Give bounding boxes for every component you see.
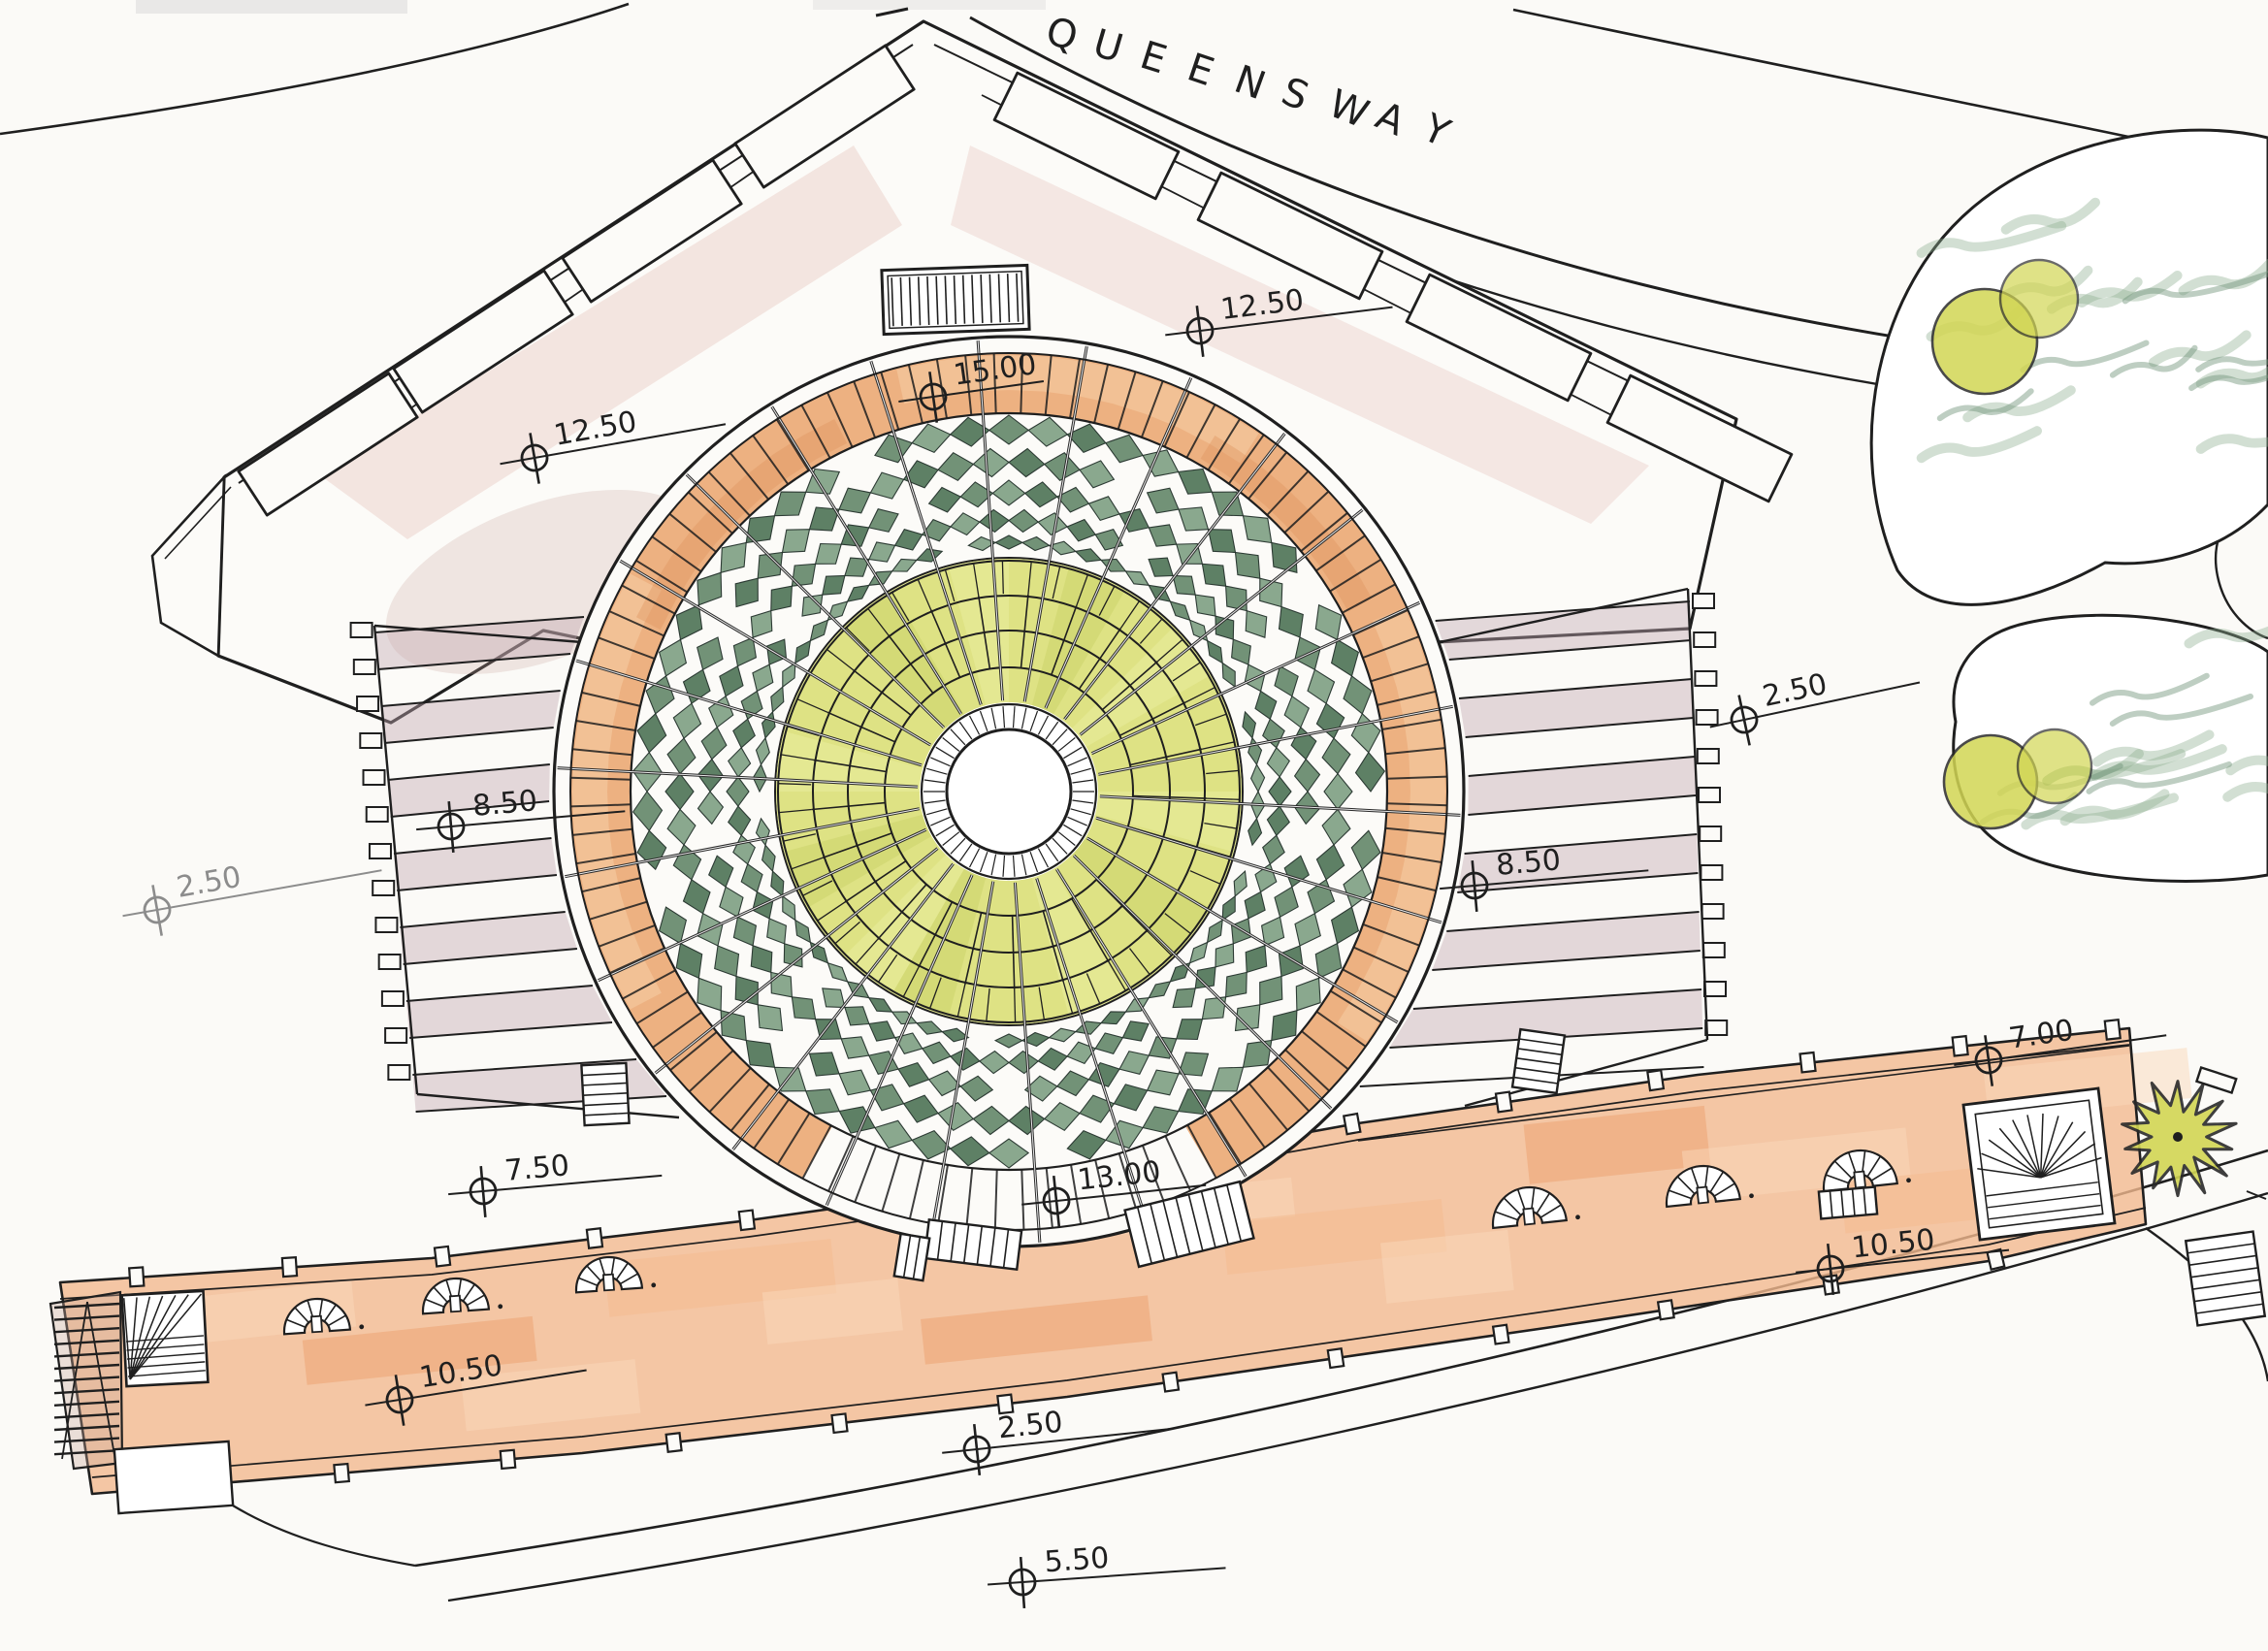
terrace-stair bbox=[1819, 1187, 1877, 1219]
wing-stair bbox=[581, 1063, 629, 1125]
railing-post bbox=[1496, 1092, 1512, 1113]
railing-post bbox=[435, 1246, 450, 1267]
wing-edge-tab bbox=[382, 991, 404, 1006]
glazing-fine-radial bbox=[1002, 561, 1003, 594]
railing-post bbox=[1800, 1052, 1816, 1072]
stair-ramp bbox=[50, 1292, 122, 1469]
wing-edge-tab bbox=[1701, 865, 1722, 880]
railing-post bbox=[1344, 1114, 1360, 1134]
elevation-value: 8.50 bbox=[1495, 843, 1563, 883]
elevation-value: 8.50 bbox=[471, 784, 539, 824]
wing-edge-tab bbox=[364, 770, 385, 785]
wing-edge-tab bbox=[388, 1065, 409, 1080]
glazing-fine-radial bbox=[1015, 989, 1016, 1022]
site-plan-svg: QUEENSWAY 12.5015.0012.502.508.502.508.5… bbox=[0, 0, 2268, 1651]
wing-edge-tab bbox=[375, 918, 397, 932]
railing-post bbox=[334, 1464, 348, 1482]
shrub-center-dot bbox=[2173, 1132, 2183, 1142]
wing-edge-tab bbox=[367, 807, 388, 822]
wing-edge-tab bbox=[357, 696, 378, 711]
shingle-tile bbox=[783, 530, 810, 553]
wing-edge-tab bbox=[1693, 594, 1714, 608]
wing-edge-tab bbox=[351, 623, 373, 637]
oculus-center bbox=[947, 729, 1071, 854]
spiral-stair bbox=[1963, 1088, 2115, 1240]
shingle-tile bbox=[1202, 564, 1225, 586]
shingle-tile bbox=[771, 972, 793, 996]
railing-post bbox=[1953, 1036, 1968, 1055]
shingle-tile bbox=[1226, 586, 1247, 610]
shingle-tile bbox=[1173, 576, 1195, 596]
railing-post bbox=[501, 1450, 515, 1469]
railing-post bbox=[282, 1257, 297, 1277]
tree-canopy bbox=[2000, 260, 2078, 338]
elevation-value: 7.50 bbox=[503, 1149, 571, 1188]
roof-vent-box bbox=[882, 265, 1029, 334]
wing-edge-tab bbox=[1694, 632, 1715, 647]
railing-post bbox=[129, 1267, 144, 1286]
shingle-tile bbox=[792, 997, 815, 1020]
roof-vent bbox=[882, 265, 1029, 334]
wing-edge-tab bbox=[370, 844, 391, 858]
elevation-value: 2.50 bbox=[996, 1406, 1064, 1446]
wing-edge-tab bbox=[1705, 1020, 1727, 1035]
railing-post bbox=[1493, 1325, 1508, 1344]
wing-edge-tab bbox=[360, 733, 381, 748]
wing-edge-tab bbox=[1704, 982, 1726, 996]
railing-post bbox=[587, 1228, 602, 1248]
wing-edge-tab bbox=[354, 660, 375, 674]
spiral-stair bbox=[122, 1291, 209, 1386]
wing-edge-tab bbox=[373, 881, 394, 895]
terrace-edge-stair bbox=[2186, 1232, 2265, 1326]
site-plan-drawing: QUEENSWAY 12.5015.0012.502.508.502.508.5… bbox=[0, 0, 2268, 1651]
railing-post bbox=[1328, 1348, 1344, 1368]
stair-outline bbox=[2186, 1232, 2265, 1326]
wing-edge-tab bbox=[1703, 943, 1725, 957]
wing-edge-tab bbox=[1702, 904, 1724, 919]
shingle-tile bbox=[746, 1041, 774, 1068]
fan-door bbox=[311, 1316, 322, 1333]
wing-edge-tab bbox=[1695, 671, 1716, 686]
railing-post bbox=[2105, 1020, 2121, 1039]
shingle-tile bbox=[1195, 595, 1215, 616]
wing-edge-tab bbox=[1699, 788, 1720, 802]
railing-post bbox=[1647, 1070, 1664, 1090]
shingle-tile bbox=[1209, 530, 1236, 553]
shingle-tile bbox=[823, 576, 845, 596]
railing-post bbox=[666, 1433, 682, 1451]
terrace-base-block bbox=[114, 1441, 233, 1513]
scan-smudge bbox=[813, 0, 1046, 10]
tree-canopy bbox=[2018, 729, 2091, 803]
fan-door bbox=[1854, 1172, 1865, 1188]
fan-door bbox=[450, 1296, 461, 1312]
shingle-tile bbox=[1244, 516, 1272, 543]
shingle-tile bbox=[758, 1005, 782, 1031]
stair-outline bbox=[1819, 1187, 1877, 1219]
railing-post bbox=[1163, 1373, 1179, 1392]
shingle-tile bbox=[1226, 972, 1247, 996]
fan-door bbox=[1523, 1209, 1535, 1225]
elevation-value: 5.50 bbox=[1043, 1541, 1110, 1580]
shingle-tile bbox=[771, 586, 793, 610]
wing-edge-tab bbox=[1698, 749, 1719, 763]
fan-door bbox=[1697, 1187, 1708, 1204]
railing-post bbox=[739, 1211, 755, 1231]
railing-post bbox=[832, 1413, 848, 1432]
railing-post bbox=[1658, 1300, 1674, 1319]
wing-edge-tab bbox=[385, 1028, 406, 1043]
scan-smudge bbox=[136, 0, 407, 14]
stair-outline bbox=[894, 1234, 930, 1280]
shingle-tile bbox=[1173, 988, 1195, 1008]
shingle-tile bbox=[823, 988, 845, 1008]
spiral-outline bbox=[1963, 1088, 2115, 1240]
shingle-tile bbox=[1236, 553, 1260, 579]
wing-edge-tab bbox=[379, 955, 401, 969]
wing-stair bbox=[1512, 1029, 1565, 1093]
dome-roof bbox=[553, 336, 1465, 1247]
dome-stair bbox=[894, 1234, 930, 1280]
fan-door bbox=[603, 1275, 614, 1291]
wing-edge-tab bbox=[1697, 710, 1718, 725]
wing-edge-tab bbox=[1700, 826, 1721, 841]
